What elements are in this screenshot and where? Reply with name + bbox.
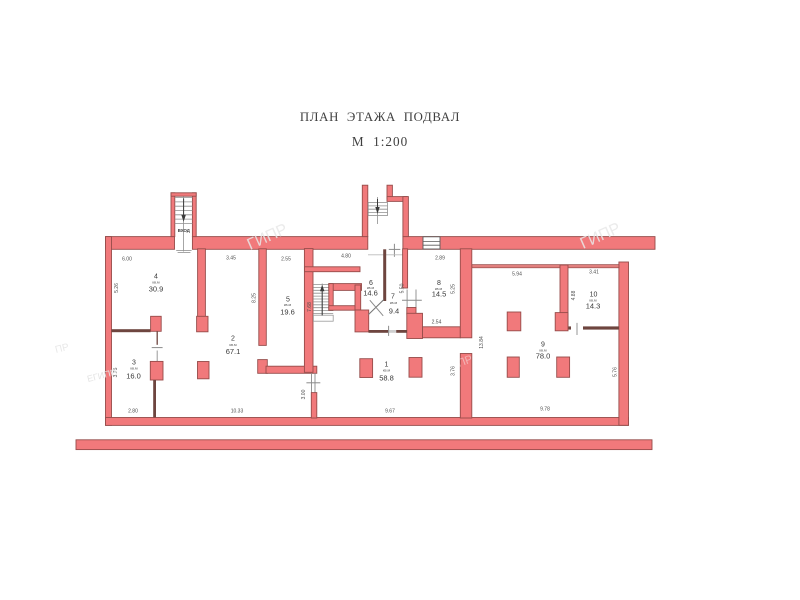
svg-text:2.80: 2.80 (128, 409, 138, 415)
svg-text:10.33: 10.33 (231, 409, 244, 415)
svg-text:30.9: 30.9 (149, 285, 164, 294)
svg-text:78.0: 78.0 (536, 352, 551, 361)
svg-text:13.84: 13.84 (479, 336, 485, 349)
svg-text:3.00: 3.00 (301, 389, 307, 399)
svg-text:кв.м: кв.м (383, 369, 391, 373)
svg-text:19.6: 19.6 (280, 308, 295, 317)
svg-text:кв.м: кв.м (284, 303, 292, 307)
svg-text:5.76: 5.76 (613, 367, 619, 377)
svg-text:3: 3 (132, 360, 136, 367)
svg-text:9.78: 9.78 (540, 407, 550, 413)
svg-text:кв.м: кв.м (390, 301, 398, 305)
svg-text:7.68: 7.68 (307, 302, 313, 312)
svg-text:4: 4 (154, 274, 158, 281)
svg-text:3.45: 3.45 (226, 256, 236, 262)
svg-text:ВХОД: ВХОД (178, 228, 190, 233)
svg-text:6.00: 6.00 (122, 257, 132, 263)
svg-text:ЕГИПР: ЕГИПР (86, 367, 117, 384)
svg-text:16.0: 16.0 (126, 372, 141, 381)
svg-text:9.4: 9.4 (389, 307, 399, 316)
svg-text:67.1: 67.1 (226, 347, 241, 356)
svg-text:7: 7 (391, 294, 395, 301)
svg-text:4.80: 4.80 (341, 254, 351, 260)
svg-text:кв.м: кв.м (130, 367, 138, 371)
svg-text:5.94: 5.94 (512, 272, 522, 278)
svg-text:9.67: 9.67 (385, 409, 395, 415)
svg-text:9: 9 (541, 342, 545, 349)
svg-text:3.41: 3.41 (589, 270, 599, 276)
svg-text:3.76: 3.76 (450, 366, 456, 376)
svg-text:4.88: 4.88 (571, 290, 577, 300)
svg-text:М 1:200: М 1:200 (352, 134, 408, 149)
svg-text:14.5: 14.5 (432, 290, 447, 299)
svg-text:2.89: 2.89 (435, 256, 445, 262)
svg-text:2: 2 (231, 336, 235, 343)
svg-text:14.3: 14.3 (586, 302, 601, 311)
svg-text:10: 10 (590, 292, 598, 299)
svg-text:14.6: 14.6 (363, 289, 378, 298)
svg-text:ПЛАН ЭТАЖА ПОДВАЛ: ПЛАН ЭТАЖА ПОДВАЛ (300, 110, 460, 124)
svg-text:8.25: 8.25 (252, 293, 258, 303)
svg-text:ПР: ПР (54, 342, 70, 356)
svg-text:1: 1 (385, 362, 389, 369)
svg-text:58.8: 58.8 (379, 374, 394, 383)
svg-text:2.55: 2.55 (281, 257, 291, 263)
svg-text:5.26: 5.26 (114, 283, 120, 293)
svg-text:5.50: 5.50 (400, 283, 406, 293)
svg-text:5.25: 5.25 (450, 284, 456, 294)
svg-text:2.54: 2.54 (432, 320, 442, 326)
